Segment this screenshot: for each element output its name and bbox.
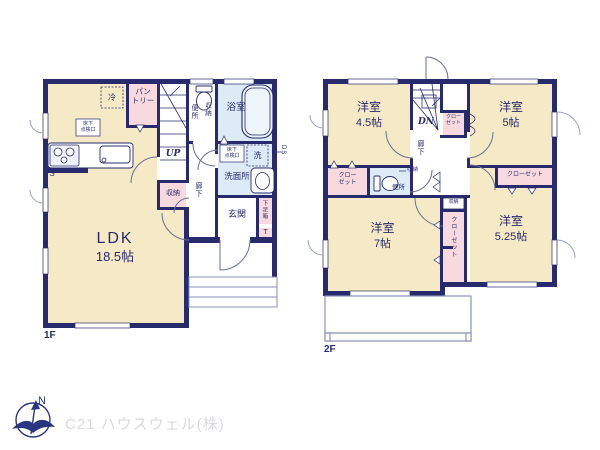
wash-hatch-label: 床下 点検口: [220, 148, 244, 160]
ldk-room-lower: [157, 210, 186, 323]
hall-storage2-label: 収納: [407, 167, 418, 173]
room-sw-label: 洋室: [330, 222, 435, 236]
compass-wings: [12, 420, 55, 433]
room-sw-size-label: 7帖: [330, 238, 435, 251]
stairs-dn-label: DN: [413, 117, 439, 127]
hall-storage-label: 収納: [160, 190, 186, 198]
room-ne-label: 洋室: [470, 101, 552, 115]
room-se-size-label: 5.25帖: [470, 231, 552, 244]
floor2-balcony: [325, 296, 471, 341]
hallway1-label: 廊下: [194, 182, 202, 198]
shoe-t-label: T: [259, 229, 272, 237]
floor1-label: 1F: [44, 330, 56, 342]
toilet1-storage-label: 収納: [203, 102, 210, 117]
shoe-box-label: 下足箱: [261, 200, 267, 220]
compass-north-label: N: [38, 395, 46, 407]
room-ne-size-label: 5帖: [470, 117, 552, 130]
floor1-porch-steps: [189, 277, 277, 307]
duct-label: DS: [279, 145, 286, 155]
stairs-up-label: UP: [160, 149, 186, 159]
entrance-label: 玄関: [219, 209, 255, 219]
company-watermark: C21 ハウスウェル(株): [65, 413, 225, 434]
pantry-label: パン トリー: [129, 88, 157, 105]
compass: N: [12, 395, 55, 437]
room-nw-label: 洋室: [328, 101, 410, 115]
floor1-exterior-arcs: [30, 120, 43, 203]
ps-label: PS: [44, 169, 55, 178]
room-se-label: 洋室: [470, 215, 552, 229]
bath-label: 浴室: [219, 103, 253, 114]
toilet2-label: 便所: [392, 184, 405, 191]
kitchen-hatch-label: 床下 点検口: [76, 122, 100, 134]
floorplan-page: N LDK 18.5帖 パン トリー 冷 床下 点検口 PS UP 便所 収納 …: [0, 0, 600, 450]
washroom-label: 洗面所: [218, 172, 256, 182]
hallway2-label: 廊下: [416, 140, 424, 156]
center-storage-label: 収納: [443, 200, 464, 206]
toilet1-label: 便所: [190, 104, 198, 120]
floor2-label: 2F: [324, 344, 336, 356]
closet-stairs-label: クロー ゼット: [443, 115, 464, 127]
closet-east-label: クローゼット: [498, 172, 552, 179]
room-nw-size-label: 4.5帖: [328, 117, 410, 130]
closet-center-label: クローゼット: [449, 216, 456, 258]
fridge-label: 冷: [101, 93, 123, 102]
closet-west-label: クロー ゼット: [328, 173, 367, 187]
ldk-label: LDK: [70, 230, 160, 248]
ldk-size-label: 18.5帖: [70, 250, 160, 265]
washer-label: 洗: [247, 151, 268, 160]
